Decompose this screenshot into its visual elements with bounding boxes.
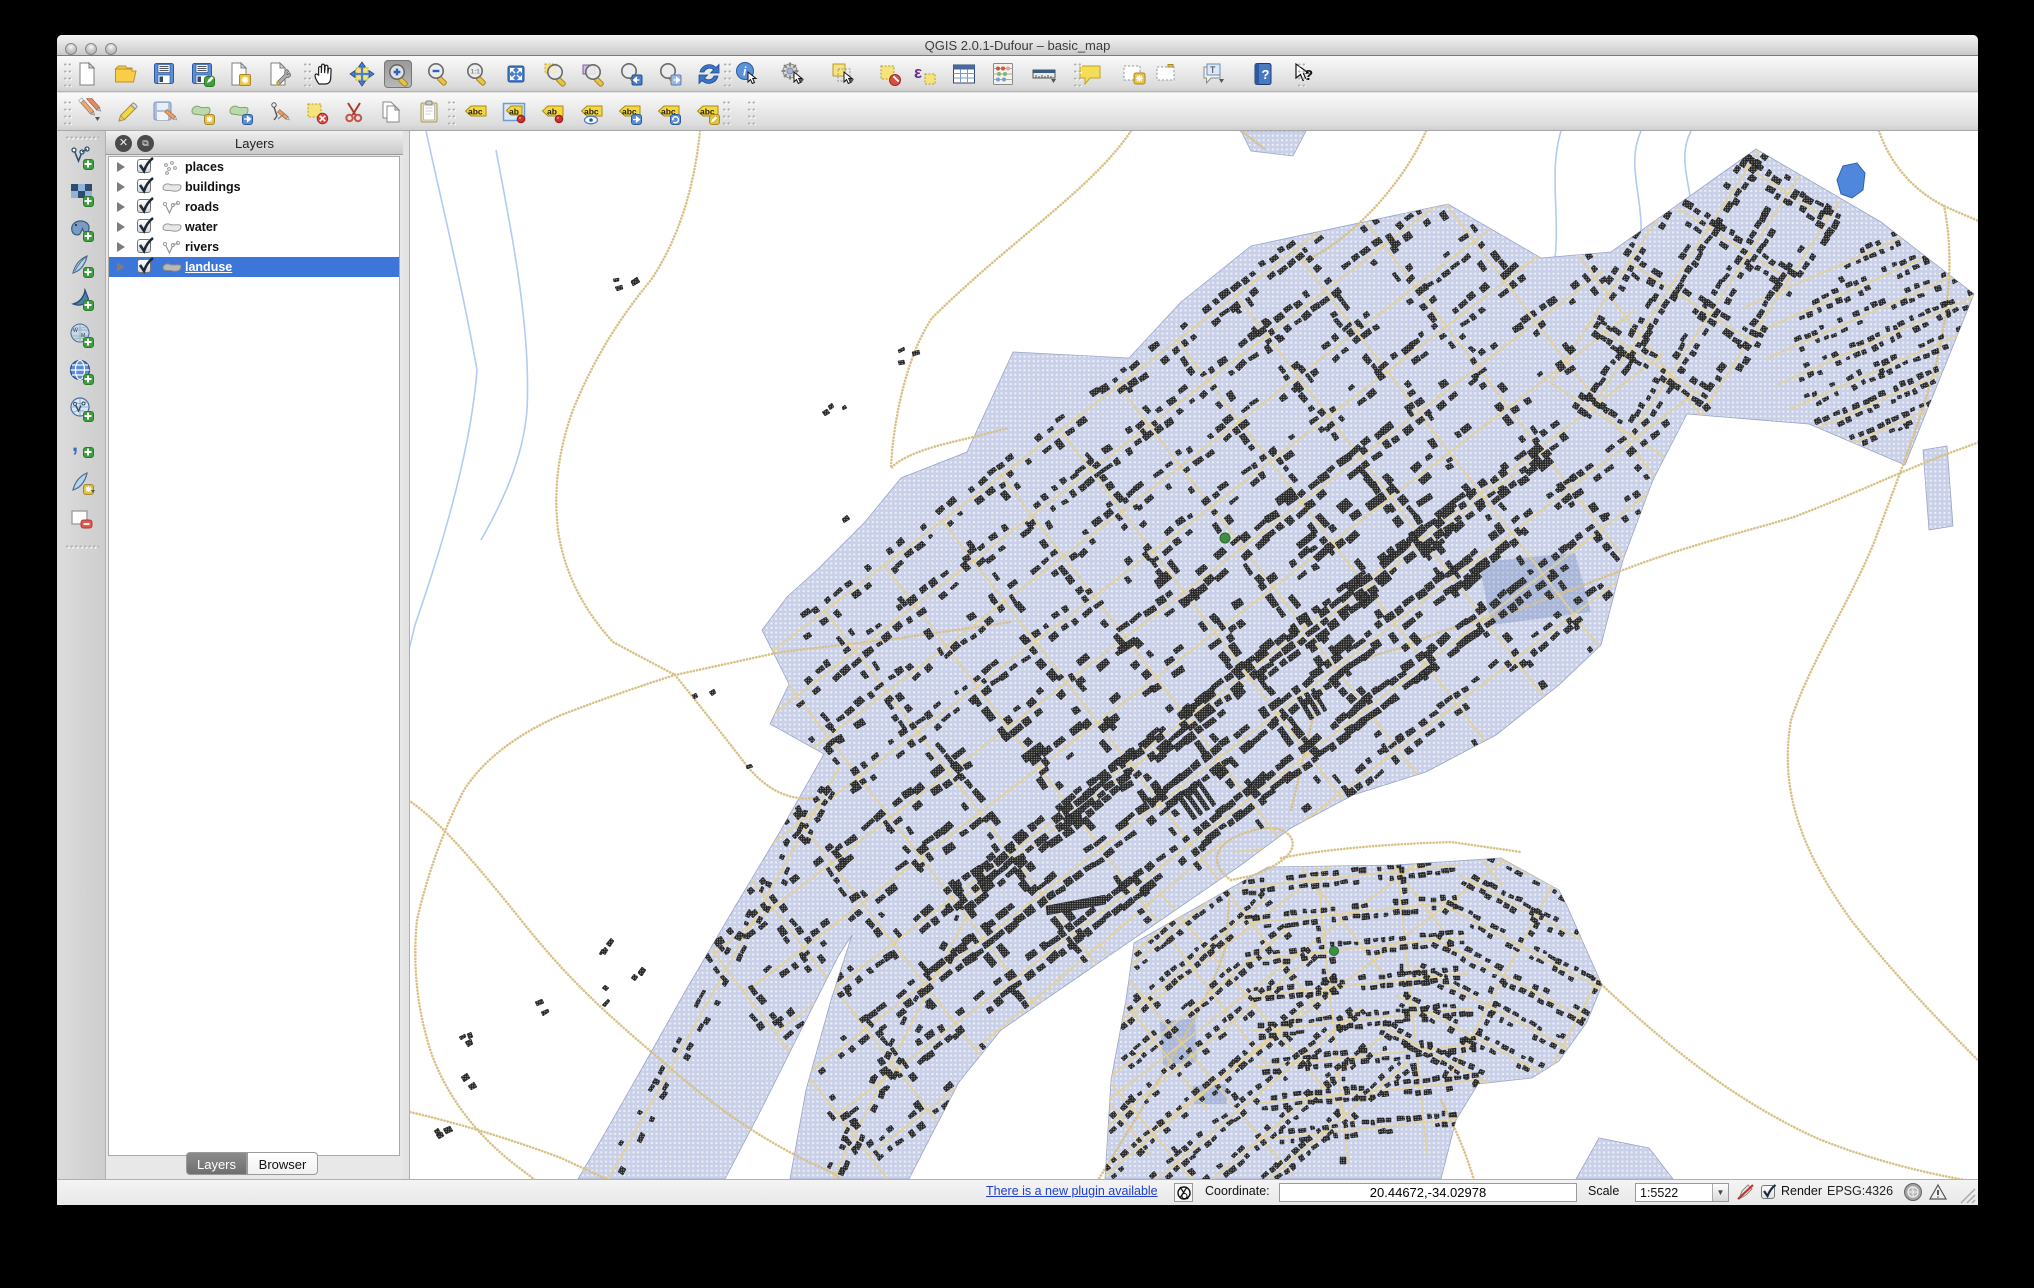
svg-text:ab: ab bbox=[547, 107, 557, 117]
svg-text:ab: ab bbox=[509, 107, 519, 117]
svg-text:?: ? bbox=[1262, 67, 1270, 82]
svg-text:W: W bbox=[73, 328, 78, 334]
svg-text:ε: ε bbox=[914, 63, 922, 82]
svg-text:1:1: 1:1 bbox=[471, 69, 481, 76]
svg-text:T: T bbox=[1210, 65, 1216, 75]
svg-text:,: , bbox=[72, 431, 78, 456]
svg-text:abc: abc bbox=[468, 107, 483, 117]
svg-text:abc: abc bbox=[584, 107, 599, 117]
